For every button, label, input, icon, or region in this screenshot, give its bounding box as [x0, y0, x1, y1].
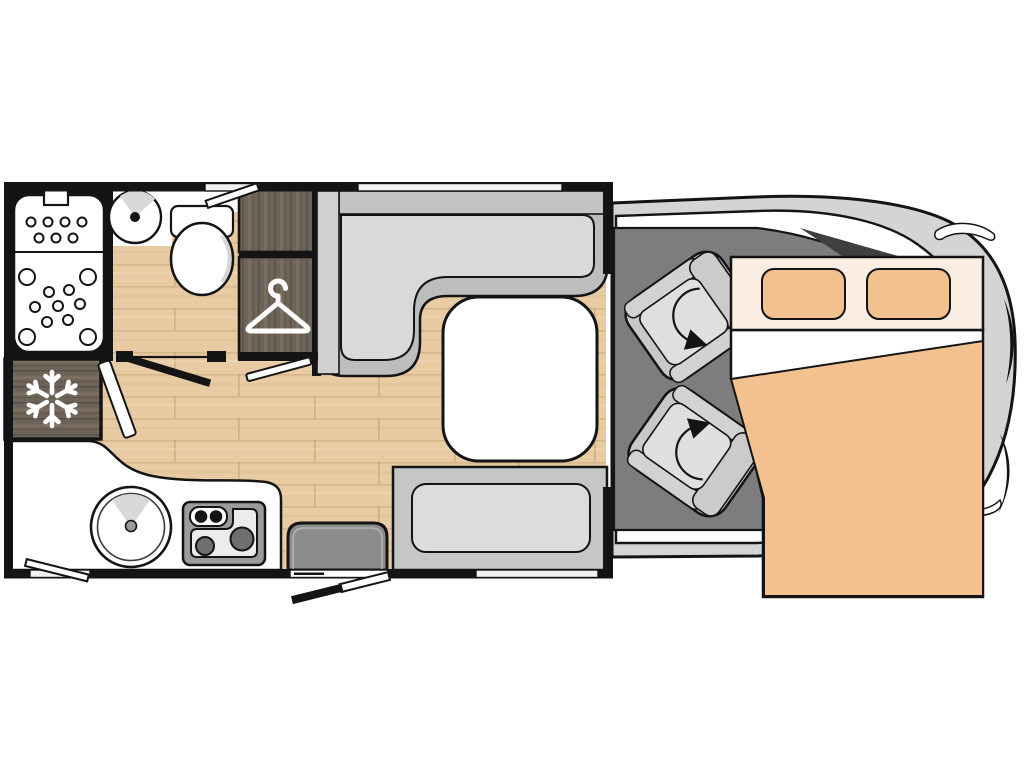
dinette-backrest-top	[339, 191, 605, 214]
window-bench	[476, 570, 598, 578]
bed-blanket	[731, 341, 983, 596]
cabinet-divider	[239, 251, 315, 258]
step-mat	[288, 523, 387, 570]
wall-right-upper	[603, 182, 613, 274]
wardrobe-cabinet	[239, 257, 315, 358]
wardrobe	[239, 186, 321, 376]
kitchen-sink	[91, 487, 171, 567]
sink-drain	[126, 521, 137, 532]
bench-seat	[393, 467, 607, 570]
window-dinette	[358, 184, 562, 192]
habitation-area	[5, 185, 608, 572]
burner-icon	[196, 537, 214, 555]
door-sill-mark	[294, 573, 324, 576]
toilet	[171, 206, 233, 295]
floorplan-canvas	[0, 0, 1024, 768]
door-hinge	[207, 351, 226, 362]
bed-pillow	[867, 269, 950, 319]
bed-pillow	[762, 269, 845, 319]
basin-drain	[130, 212, 140, 222]
bench-cushion	[412, 484, 590, 552]
dinette-table	[443, 297, 597, 461]
stove-knob	[210, 510, 223, 523]
stove-knob	[195, 510, 208, 523]
shower	[5, 185, 113, 361]
wall-left	[4, 182, 13, 578]
refrigerator	[5, 359, 101, 439]
washbasin	[109, 191, 161, 243]
entry-step	[288, 523, 387, 570]
dinette-backrest-side	[317, 191, 339, 374]
stove	[183, 502, 265, 565]
wall-right-lower	[603, 487, 613, 578]
motorhome-floorplan	[0, 0, 1024, 768]
burner-icon	[231, 528, 254, 551]
overhead-cabinet	[239, 188, 315, 252]
drop-down-bed	[731, 257, 983, 597]
